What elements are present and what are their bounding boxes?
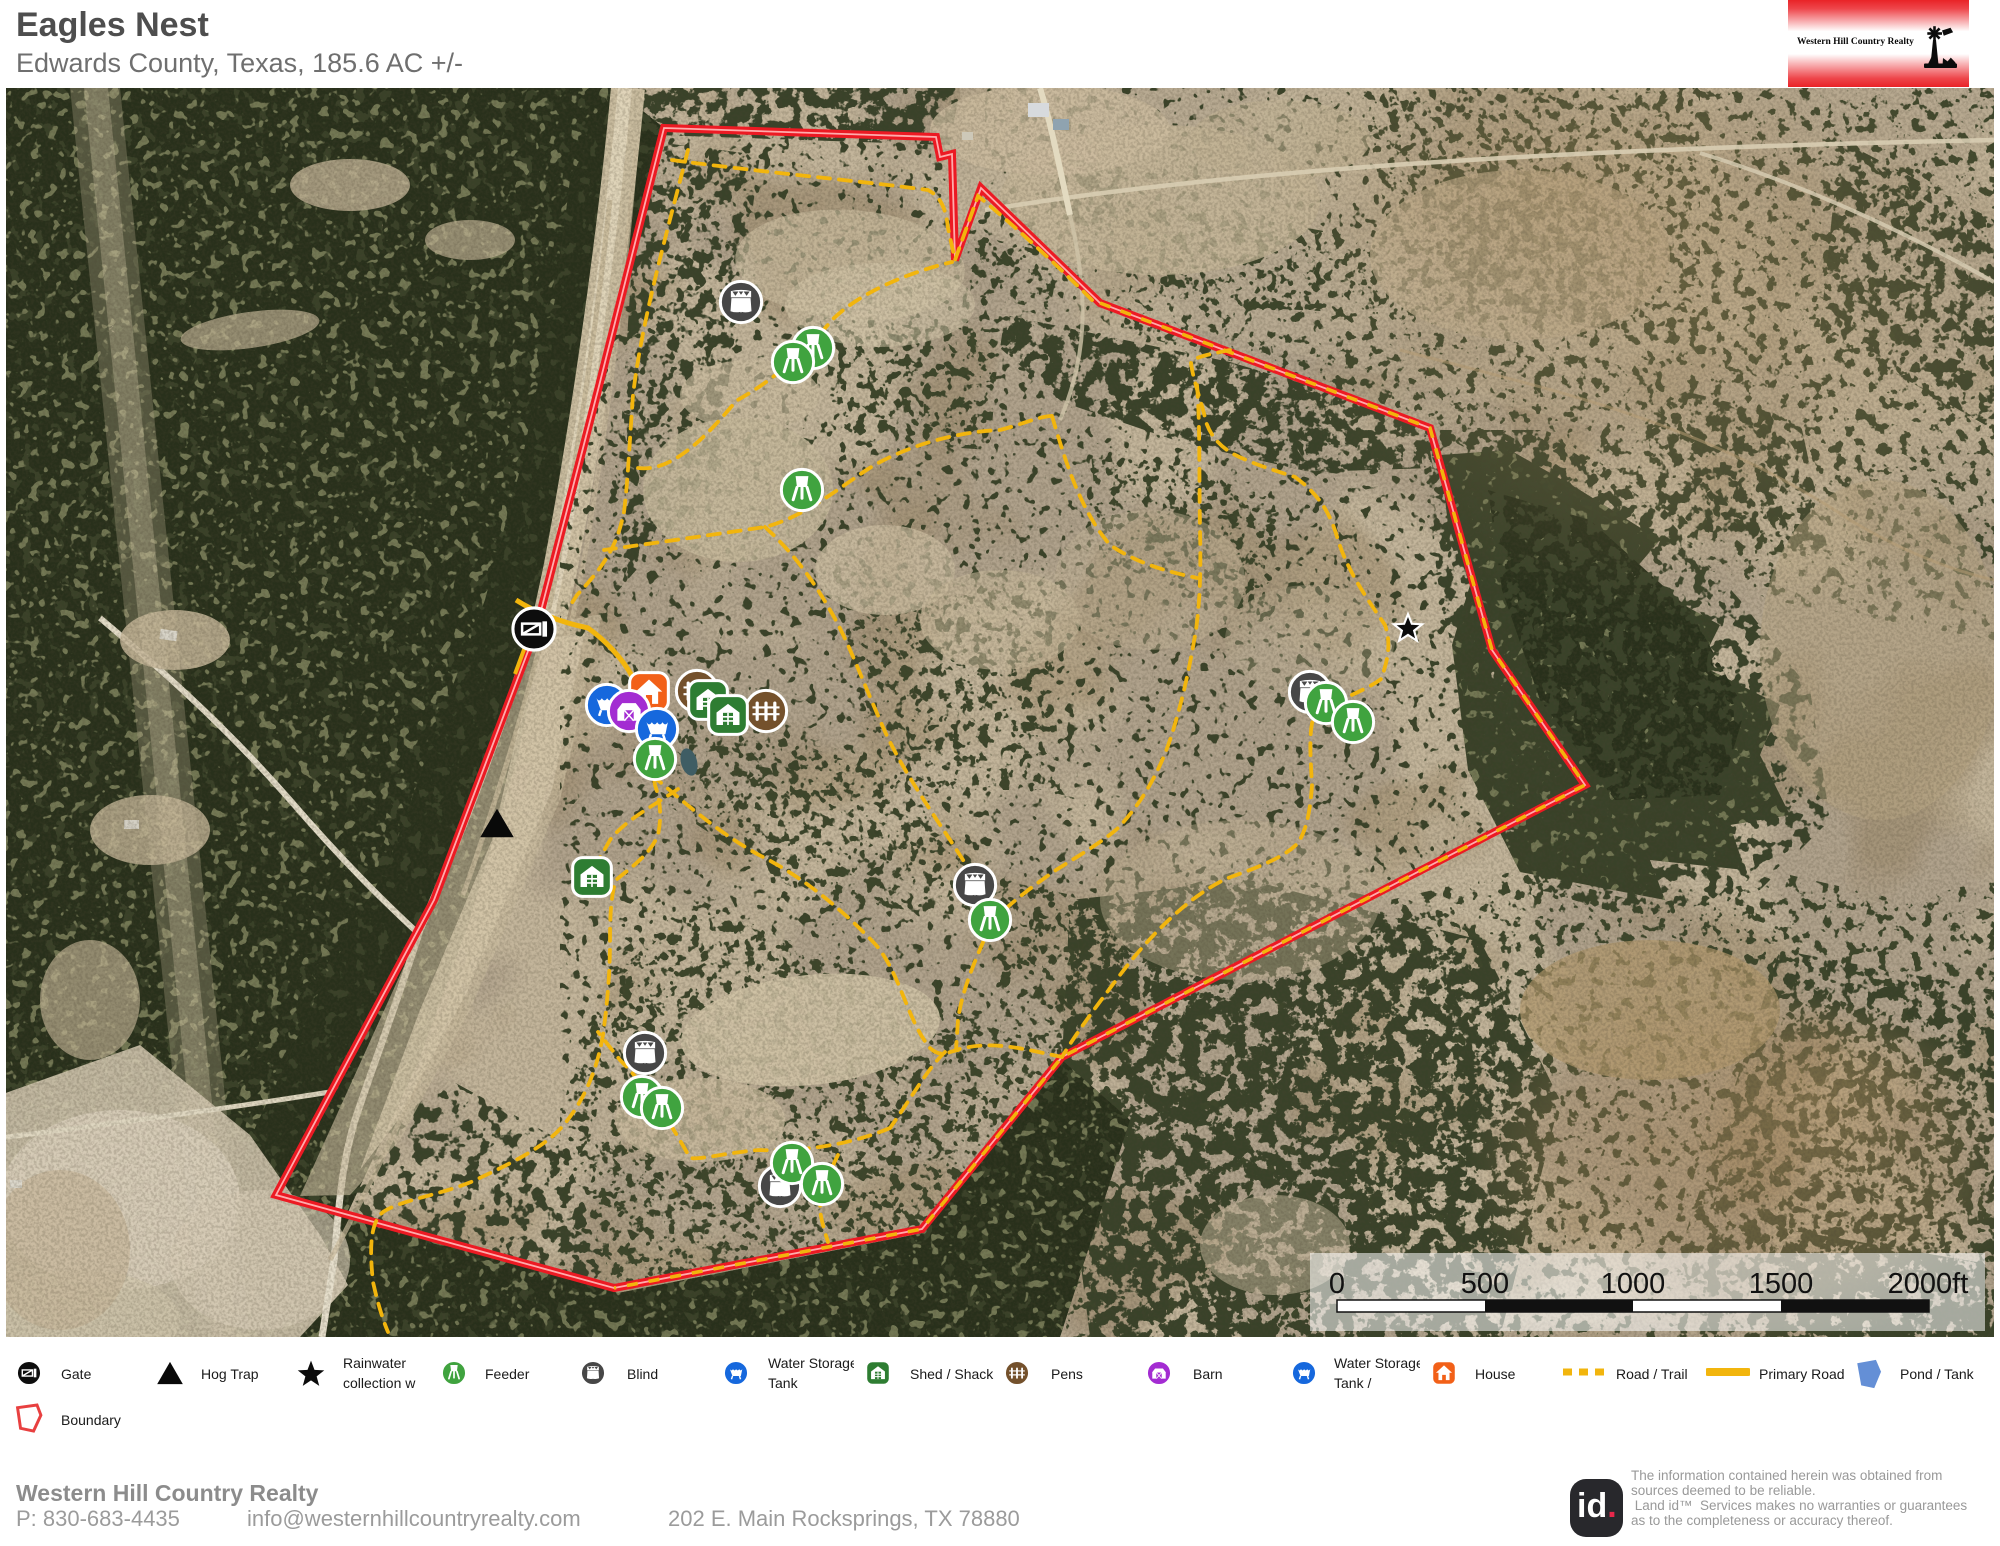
- svg-text:2000ft: 2000ft: [1888, 1268, 1969, 1300]
- svg-text:500: 500: [1461, 1268, 1509, 1300]
- svg-text:1500: 1500: [1749, 1268, 1814, 1300]
- svg-text:1000: 1000: [1601, 1268, 1666, 1300]
- svg-text:0: 0: [1329, 1268, 1345, 1300]
